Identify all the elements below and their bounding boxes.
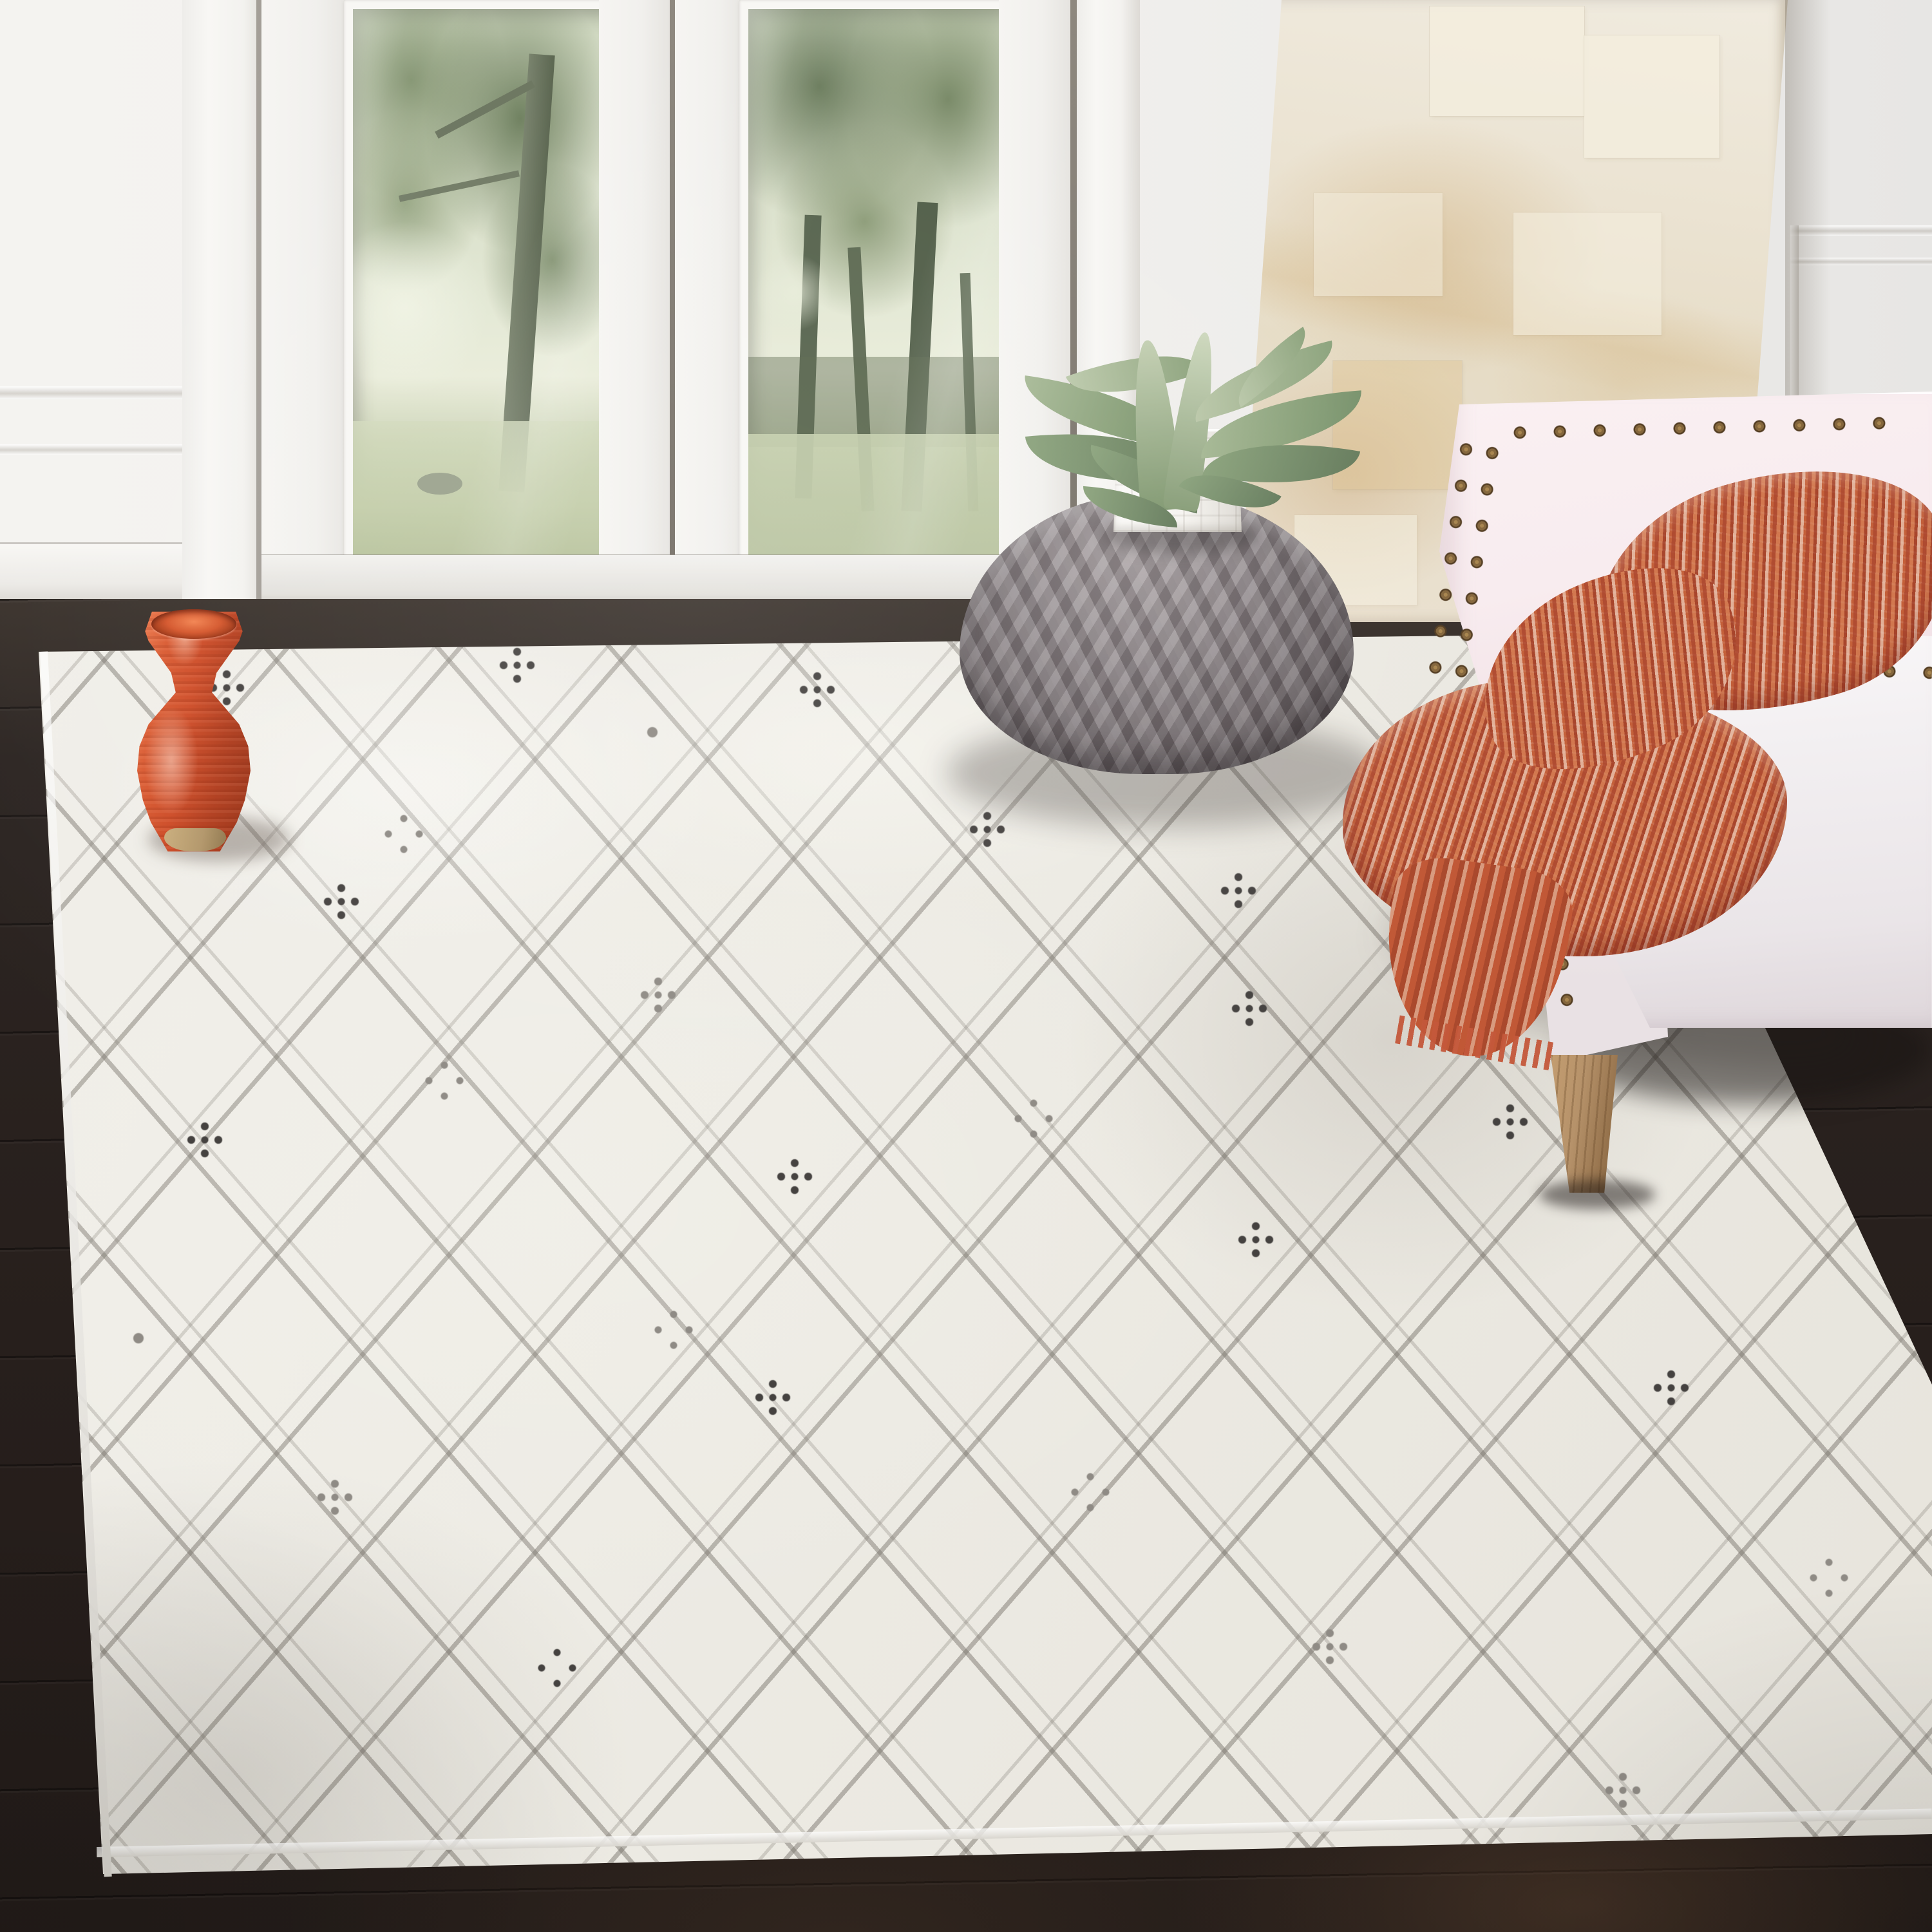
rug-motif-gx [314, 1477, 355, 1518]
rug-motif-dd [536, 1647, 578, 1689]
rug-motif-dx [1651, 1367, 1692, 1408]
door-bottom-rail [261, 555, 1077, 604]
wainscot-rail-lower [0, 444, 184, 455]
wainscot-rail-upper [0, 386, 184, 399]
painting-collage-rect [1314, 193, 1443, 296]
glass-reflection [353, 9, 617, 583]
rug-motif-gd [1013, 1098, 1054, 1139]
glass-pane-right [748, 9, 1017, 574]
rug-motif-dx [1218, 870, 1259, 911]
glass-pane-left-frame [344, 0, 608, 574]
rug-motif-gx [638, 974, 679, 1016]
rug-motif-gdot [118, 1318, 159, 1359]
rug-motif-dx [497, 645, 538, 686]
painting-collage-rect [1584, 35, 1719, 158]
rug-motif-gd [653, 1309, 694, 1350]
door-casing-left-seam [256, 0, 261, 604]
rug-motif-dx [1490, 1101, 1531, 1142]
door-meeting-stile-left [599, 0, 670, 604]
rug-motif-gd [1070, 1472, 1111, 1513]
door-meeting-stile-right [675, 0, 748, 604]
rug-motif-dx [774, 1156, 815, 1197]
painting-collage-rect [1430, 6, 1584, 116]
living-room-scene [0, 0, 1932, 1932]
rug-motif-gd [424, 1060, 465, 1101]
rug-motif-gd [1808, 1557, 1850, 1598]
vase-mouth [151, 609, 236, 639]
rug-motif-gx [1602, 1770, 1643, 1811]
rug-motif-dx [752, 1377, 793, 1418]
rug-motif-gx [1309, 1626, 1350, 1667]
glass-pane-right-frame [739, 0, 1008, 565]
rug-motif-gd [383, 813, 424, 855]
rug-motif-dx [797, 669, 838, 710]
orange-vase [137, 609, 251, 854]
baseboard-left [0, 544, 187, 601]
rug-motif-gdot [632, 712, 673, 753]
door-meeting-seam [670, 0, 675, 604]
glass-reflection [748, 9, 1017, 574]
leg-shadow [1539, 1180, 1655, 1209]
rug-motif-dx [321, 881, 362, 922]
rug-motif-dx [1235, 1219, 1276, 1260]
rug-motif-dx [1229, 988, 1270, 1029]
french-door-left-stile [261, 0, 353, 604]
rug-motif-dx [967, 809, 1008, 850]
glass-pane-left [353, 9, 617, 583]
painting-gold-wash [1333, 361, 1462, 489]
rug-motif-dx [184, 1119, 225, 1160]
painting-collage-rect [1513, 213, 1662, 335]
